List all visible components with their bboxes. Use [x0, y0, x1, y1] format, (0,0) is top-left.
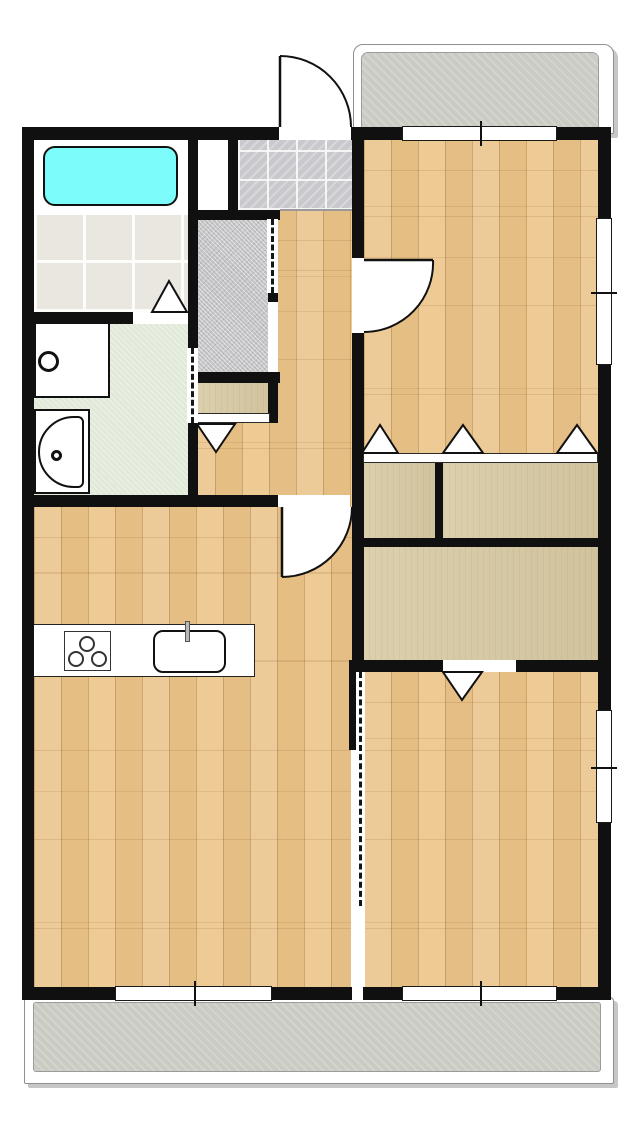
balcony-south-floor — [34, 1003, 600, 1071]
wall-bath-spine — [188, 127, 198, 507]
window-north-bedroom-tick — [480, 121, 482, 146]
kitchen-faucet — [185, 621, 190, 642]
window-east-bedroom-south-tick — [591, 767, 617, 769]
floor-plan — [0, 0, 639, 1127]
stove-burner-1 — [68, 651, 84, 667]
wall-living-north — [22, 495, 280, 507]
entry-tile-floor — [238, 140, 352, 210]
vanity-sink-faucet-dot — [51, 450, 62, 461]
living-door-opening — [278, 495, 350, 507]
window-south-bedroom-tick — [480, 981, 482, 1006]
shoe-closet-accordion-door — [271, 219, 274, 293]
shoe-closet-entry-opening — [268, 302, 278, 372]
bedroom-south-closet-opening — [443, 660, 516, 672]
bathroom-door-opening — [133, 312, 188, 324]
utility-void — [198, 137, 228, 213]
partition-wall-gap — [352, 987, 363, 1000]
window-south-living-tick — [194, 981, 196, 1006]
wall-sic-bottom — [188, 372, 280, 383]
bedroom-north-floor — [364, 140, 598, 453]
wall-west — [22, 127, 34, 1000]
living-dining-kitchen-floor — [34, 507, 352, 987]
entry-swing-door-fill — [280, 56, 351, 127]
partition-accordion-track — [359, 672, 362, 906]
wall-closet-divider-h — [352, 538, 598, 547]
wall-center-spine — [352, 140, 364, 660]
bathroom-tile-floor — [34, 215, 188, 312]
wall-entry-left — [228, 127, 238, 213]
bedroom-north-door-opening — [352, 258, 364, 333]
balcony-north-floor — [362, 53, 598, 128]
entry-swing-door-arc — [280, 56, 351, 127]
wall-sic-post — [268, 293, 278, 302]
washroom-accordion-door — [191, 348, 194, 423]
window-east-bedroom-north-tick — [591, 292, 617, 294]
washing-machine-porthole — [38, 351, 59, 372]
closet-north-left — [363, 463, 435, 538]
closet-track-north — [363, 453, 598, 463]
closet-north-right — [443, 463, 598, 538]
entry-step-edge — [280, 209, 352, 211]
bedroom-south-floor — [364, 672, 598, 987]
wall-closet-divider-v — [435, 463, 443, 538]
stove-burner-2 — [91, 651, 107, 667]
hall-closet-shelf — [197, 380, 270, 413]
bathtub — [43, 146, 178, 206]
stove-burner-0 — [79, 636, 95, 652]
entry-door-opening — [279, 127, 351, 140]
shoe-closet-floor — [197, 219, 268, 372]
closet-track-hall — [192, 413, 270, 423]
closet-south — [363, 547, 598, 660]
